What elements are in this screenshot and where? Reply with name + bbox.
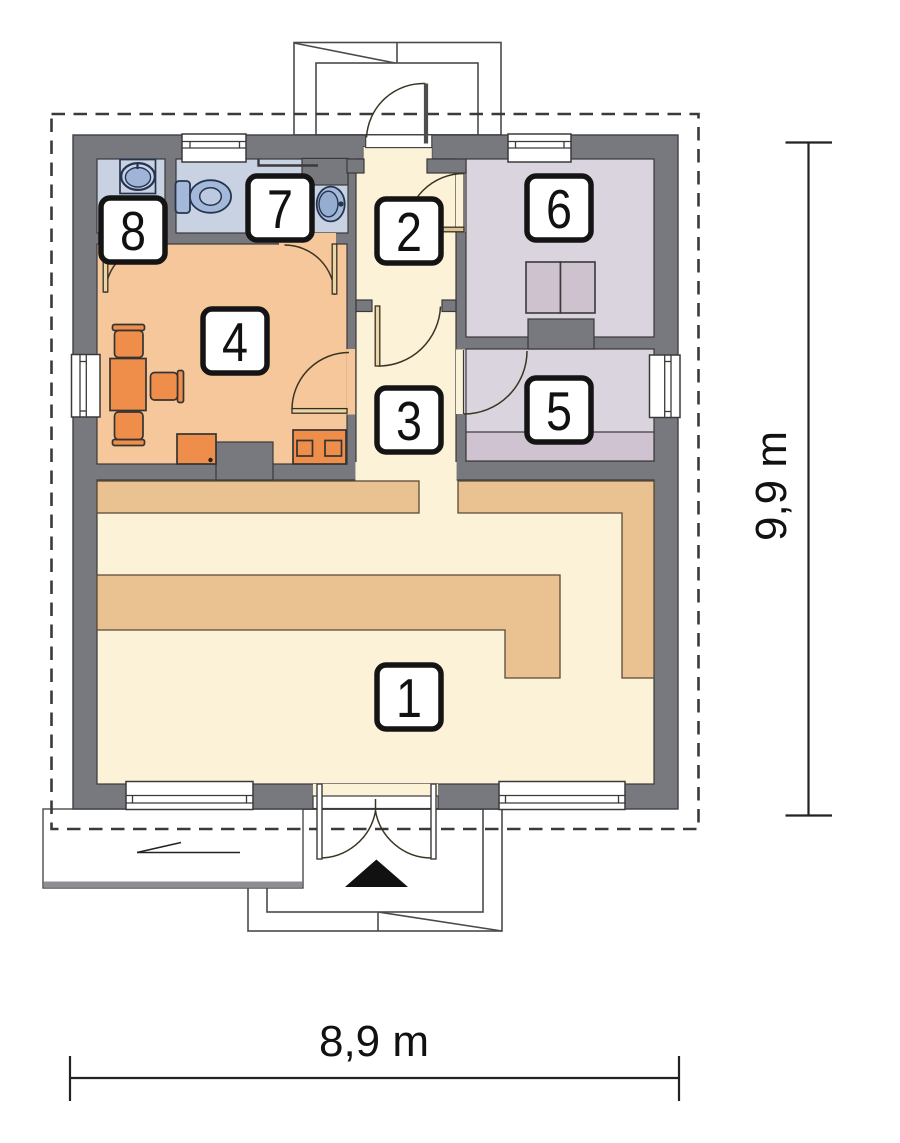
- svg-text:2: 2: [396, 201, 422, 263]
- svg-text:3: 3: [396, 390, 422, 452]
- svg-text:4: 4: [222, 311, 248, 373]
- svg-text:8,9 m: 8,9 m: [319, 1017, 429, 1066]
- svg-text:8: 8: [120, 200, 146, 262]
- svg-text:1: 1: [396, 667, 422, 729]
- svg-text:7: 7: [267, 178, 293, 240]
- svg-text:6: 6: [546, 178, 572, 240]
- svg-text:9,9 m: 9,9 m: [747, 431, 796, 541]
- svg-text:5: 5: [546, 380, 572, 442]
